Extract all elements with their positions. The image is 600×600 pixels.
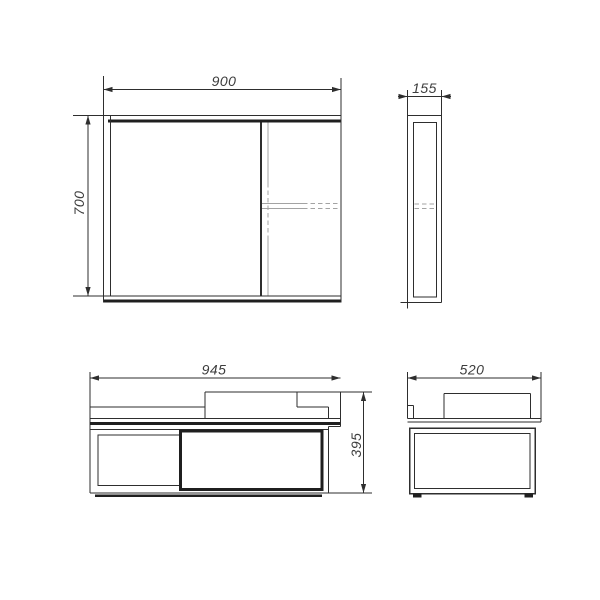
arrow-right-icon [399, 94, 408, 99]
left-door-rect [98, 435, 181, 486]
vanity-side-view [408, 372, 542, 498]
dimension-label: 945 [202, 362, 227, 378]
mirror-cabinet-front-view [73, 76, 341, 303]
technical-drawing-canvas: 900 700 155 [0, 0, 600, 600]
vanity-front-view [90, 372, 372, 496]
arrow-down-icon [361, 484, 366, 493]
dimension-label: 700 [71, 191, 87, 216]
dimension-label: 520 [460, 362, 485, 378]
dimension-label: 395 [348, 433, 364, 458]
arrow-left-icon [442, 94, 451, 99]
dim-mirror-height: 700 [71, 116, 91, 297]
dimension-label: 155 [412, 80, 437, 96]
arrow-right-icon [332, 87, 341, 92]
dimension-label: 900 [212, 73, 237, 89]
side-panel-rect [414, 123, 437, 298]
arrow-up-icon [85, 116, 90, 125]
arrow-left-icon [408, 375, 417, 380]
arrow-left-icon [90, 375, 99, 380]
dim-vanity-width: 945 [90, 362, 341, 381]
mirror-cabinet-side-view [401, 90, 442, 309]
arrow-up-icon [361, 392, 366, 401]
arrow-down-icon [85, 287, 90, 296]
dim-vanity-depth: 520 [408, 362, 542, 381]
arrow-right-icon [332, 375, 341, 380]
left-foot [413, 494, 422, 498]
arrow-left-icon [104, 87, 113, 92]
dim-mirror-depth: 155 [398, 80, 451, 99]
body-rect [410, 428, 536, 494]
right-door-rect [181, 431, 323, 490]
furniture-dimension-drawing: 900 700 155 [0, 0, 600, 600]
side-panel-rect [415, 434, 531, 489]
arrow-right-icon [532, 375, 541, 380]
right-foot [525, 494, 534, 498]
dim-mirror-width: 900 [104, 73, 342, 92]
dim-vanity-height: 395 [348, 392, 366, 493]
